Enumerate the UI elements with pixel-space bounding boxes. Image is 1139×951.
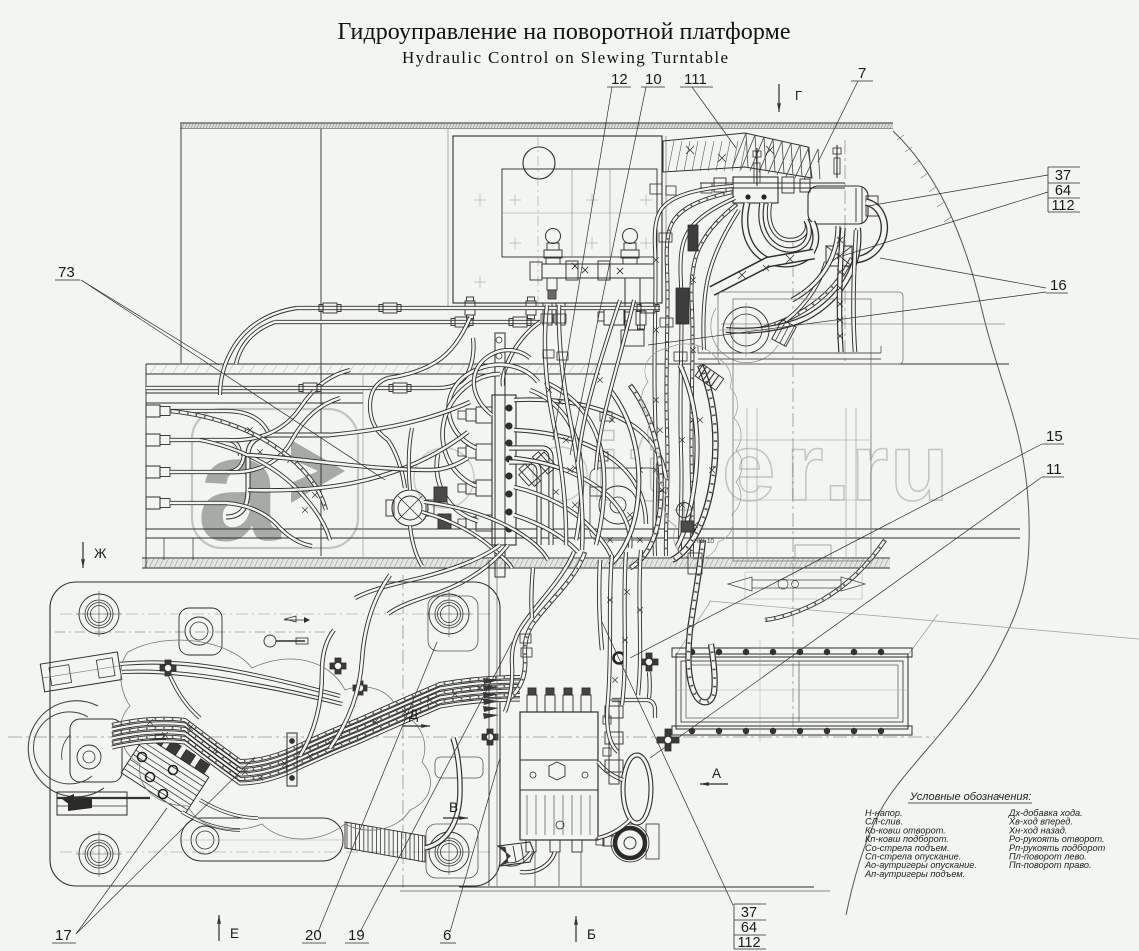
svg-text:11: 11 bbox=[1046, 461, 1062, 478]
svg-text:Ж: Ж bbox=[94, 546, 107, 561]
svg-text:10: 10 bbox=[645, 71, 662, 88]
svg-text:17: 17 bbox=[55, 927, 72, 944]
svg-text:А: А bbox=[712, 766, 721, 781]
svg-text:e: e bbox=[722, 414, 775, 521]
svg-text:64: 64 bbox=[741, 920, 757, 936]
svg-text:73: 73 bbox=[58, 264, 75, 281]
svg-text:u: u bbox=[890, 414, 949, 521]
svg-text:12: 12 bbox=[611, 71, 628, 88]
svg-text:В: В bbox=[449, 800, 458, 815]
svg-text:Гидроуправление на поворотной: Гидроуправление на поворотной платформе bbox=[338, 19, 791, 45]
svg-text:64: 64 bbox=[1055, 183, 1071, 199]
svg-text:НШ-10: НШ-10 bbox=[694, 538, 714, 545]
svg-text:Условные обозначения:: Условные обозначения: bbox=[909, 791, 1031, 803]
svg-text:37: 37 bbox=[741, 905, 757, 921]
svg-text:111: 111 bbox=[684, 71, 707, 88]
svg-text:19: 19 bbox=[348, 927, 365, 944]
svg-text:Б: Б bbox=[587, 927, 596, 942]
svg-text:Г: Г bbox=[795, 88, 802, 103]
svg-text:r: r bbox=[851, 414, 888, 521]
svg-text:Пп-поворот право.: Пп-поворот право. bbox=[1009, 860, 1092, 870]
svg-text:15: 15 bbox=[1046, 428, 1063, 445]
svg-text:Д: Д bbox=[409, 707, 418, 722]
svg-text:16: 16 bbox=[1050, 277, 1067, 294]
svg-text:37: 37 bbox=[1055, 168, 1071, 184]
svg-text:r: r bbox=[786, 414, 823, 521]
svg-text:6: 6 bbox=[443, 927, 451, 944]
svg-text:.: . bbox=[824, 414, 851, 521]
svg-text:Ап-аутригеры подъем.: Ап-аутригеры подъем. bbox=[864, 869, 965, 879]
svg-text:Hydraulic Control on Slewing T: Hydraulic Control on Slewing Turntable bbox=[402, 48, 728, 67]
svg-text:Е: Е bbox=[230, 926, 239, 941]
svg-text:7: 7 bbox=[858, 65, 866, 82]
